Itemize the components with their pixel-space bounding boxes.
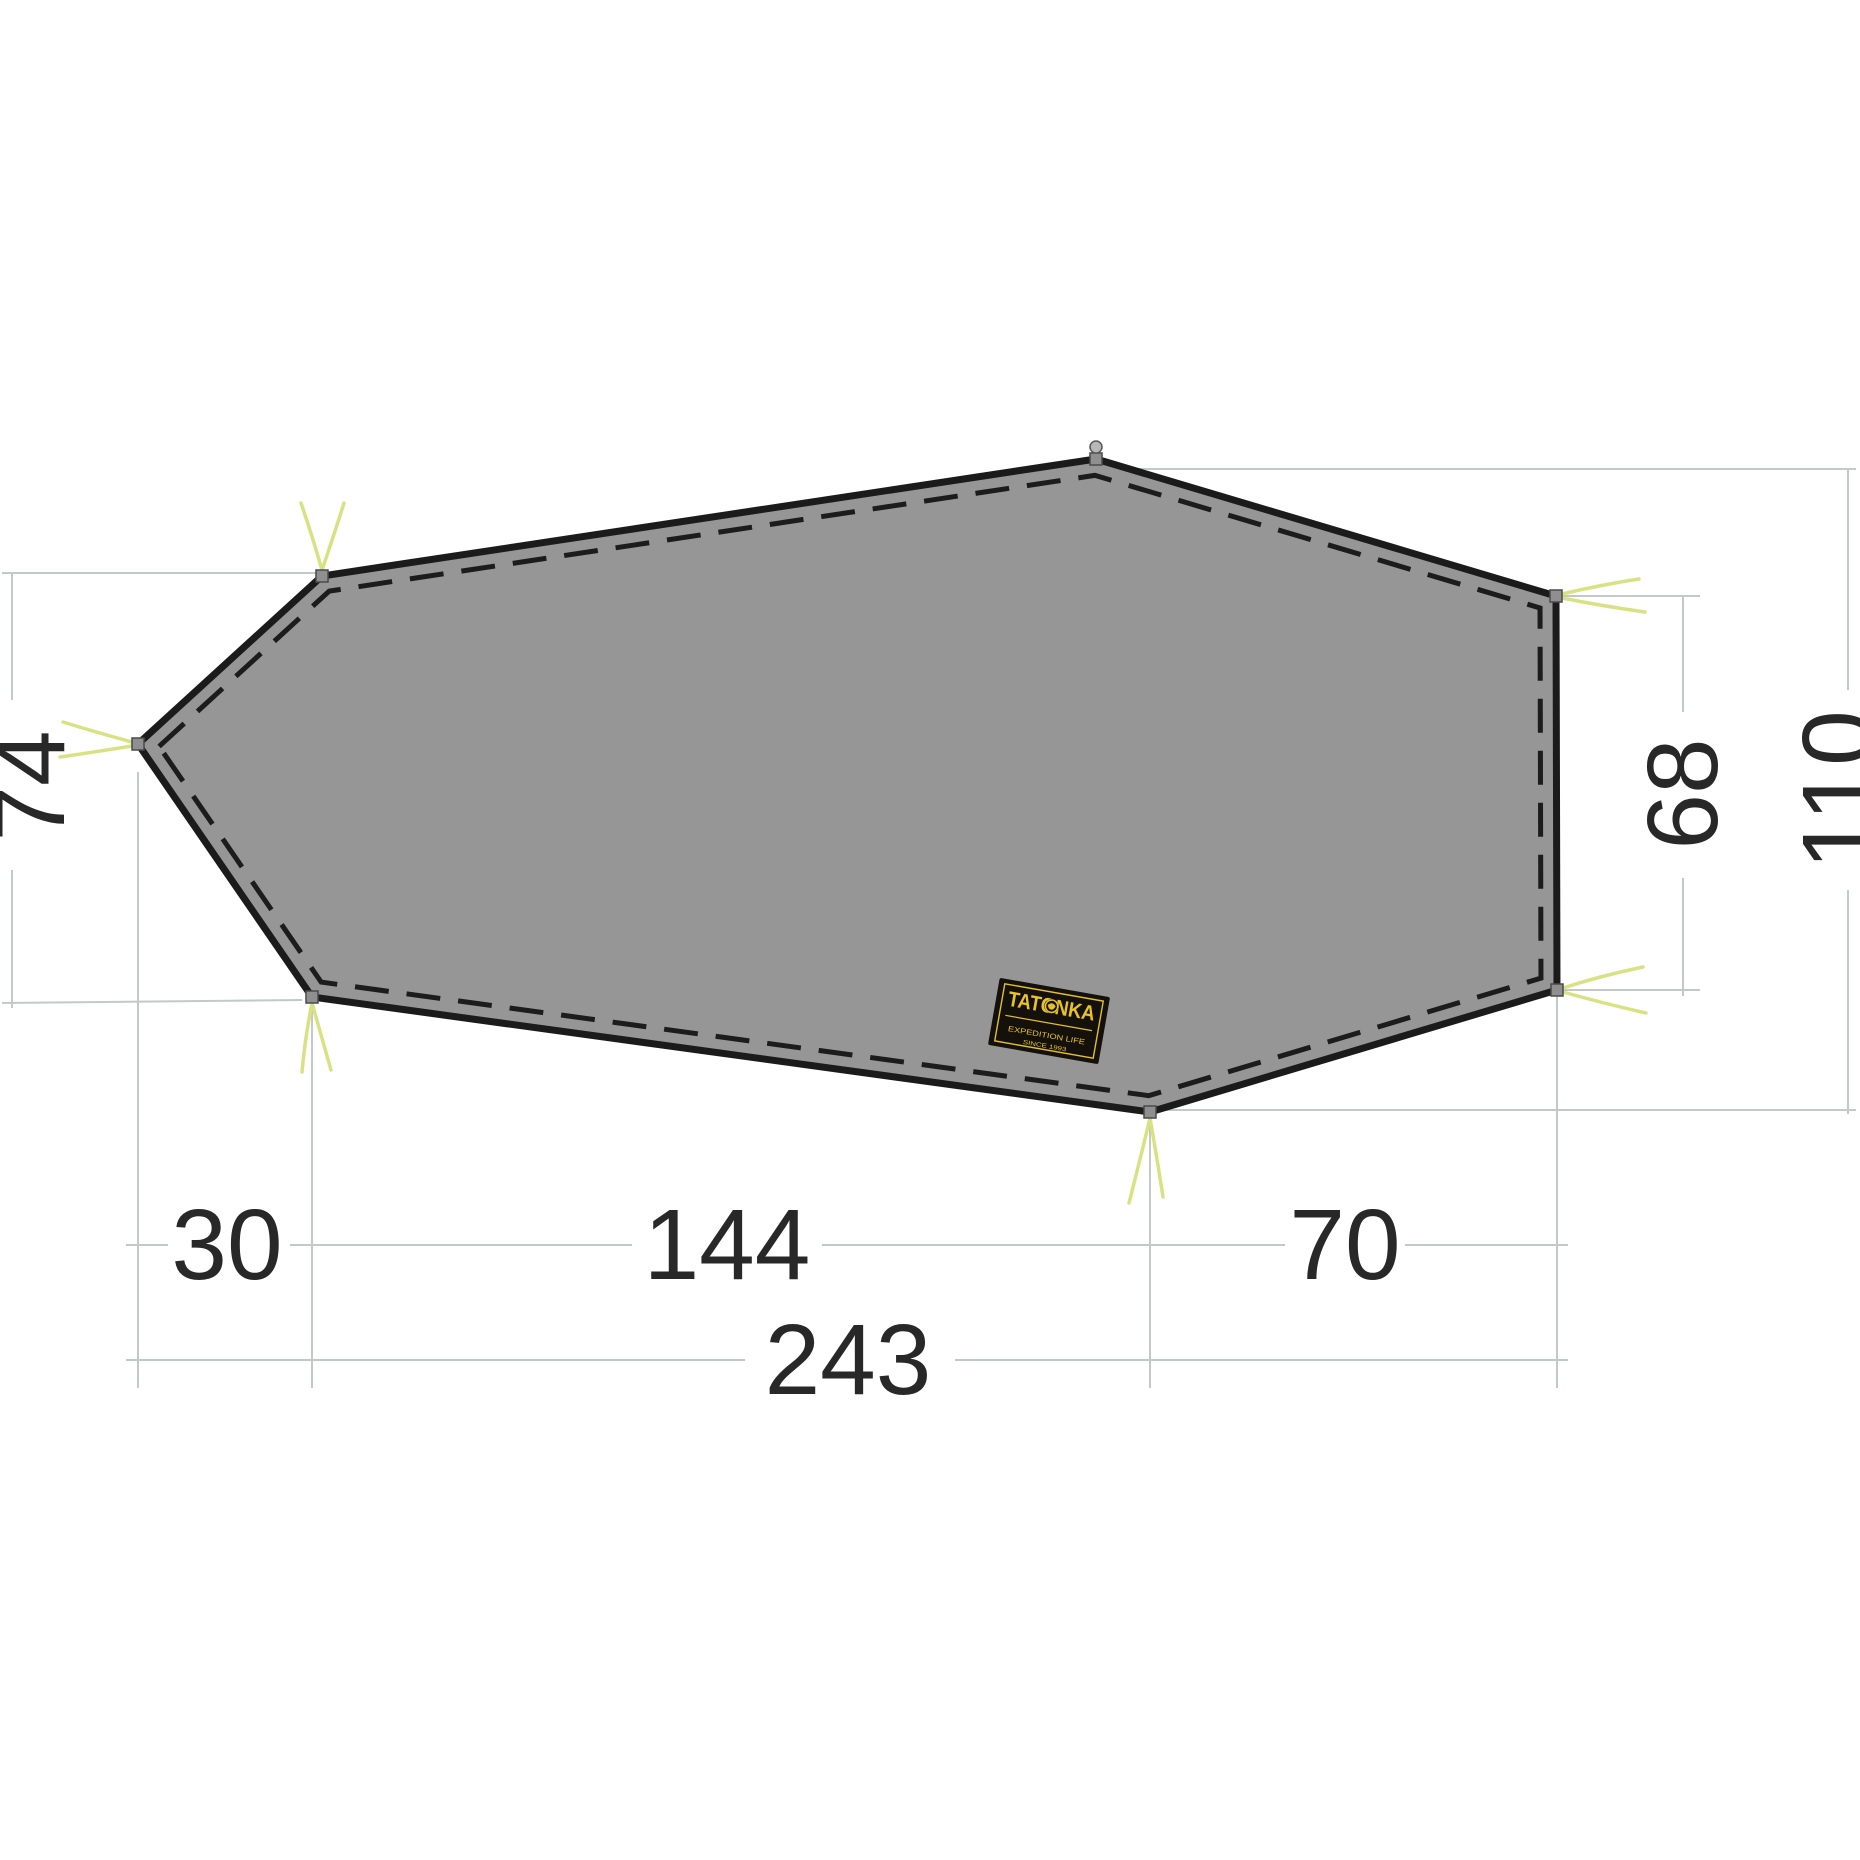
eyelet-icon	[1144, 1106, 1156, 1118]
eyelet-icon	[306, 991, 318, 1003]
footprint-dimension-drawing: TATONKAEXPEDITION LIFESINCE 199374681103…	[0, 0, 1860, 1860]
guy-line	[1562, 598, 1645, 612]
dim-30: 30	[171, 1189, 282, 1301]
eyelet-icon	[316, 570, 328, 582]
guy-line	[312, 1003, 331, 1070]
guy-line	[1129, 1118, 1150, 1203]
diagram: TATONKAEXPEDITION LIFESINCE 199374681103…	[0, 0, 1860, 1860]
dim-110: 110	[1782, 710, 1860, 869]
dim-68: 68	[1627, 738, 1739, 849]
dim-144: 144	[644, 1189, 811, 1301]
extension-line	[2, 1000, 302, 1003]
eyelet-icon	[1551, 984, 1563, 996]
guy-line	[301, 503, 322, 570]
dim-70: 70	[1289, 1189, 1400, 1301]
eyelet-icon	[1550, 590, 1562, 602]
footprint-shape	[138, 459, 1557, 1112]
guy-line	[1150, 1118, 1163, 1197]
dim-243: 243	[765, 1304, 932, 1416]
guy-line	[322, 503, 344, 570]
dim-74: 74	[0, 730, 86, 841]
guy-line	[1563, 992, 1646, 1013]
eyelet-icon	[132, 738, 144, 750]
guy-line	[1562, 579, 1639, 594]
stake-peg-icon	[1090, 441, 1102, 453]
guy-line	[1563, 967, 1643, 988]
guy-line	[302, 1003, 312, 1072]
eyelet-icon	[1090, 453, 1102, 465]
